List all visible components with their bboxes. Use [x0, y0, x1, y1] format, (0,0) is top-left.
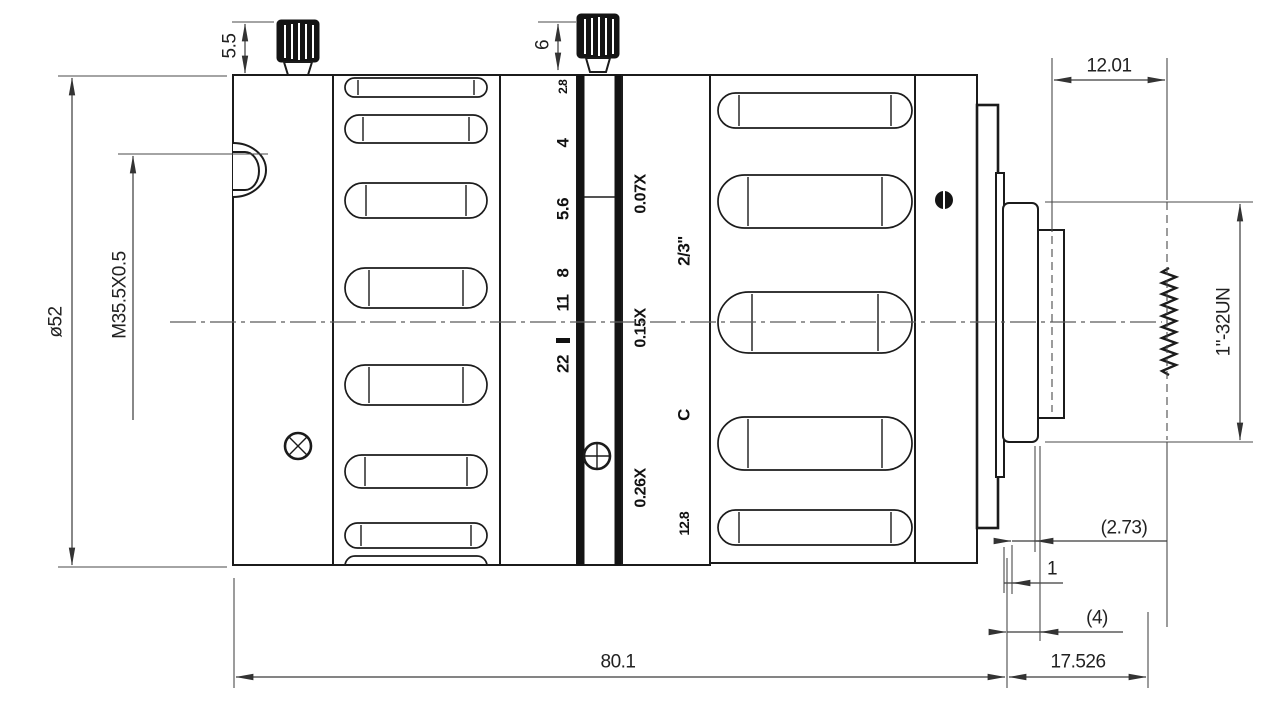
flange-focal-distance-label: 17.526 — [1050, 652, 1105, 673]
lens-drawing: 2.8 4 5.6 8 11 22 0.0 — [0, 0, 1280, 701]
front-knob-height-label: 5.5 — [220, 34, 241, 59]
aperture-value: 5.6 — [554, 198, 573, 220]
index-ring — [577, 75, 622, 565]
mount-section-length-label: 12.01 — [1086, 56, 1131, 77]
dim-tip-ref: (4) — [990, 446, 1123, 641]
dim-front-diameter: ø52 — [46, 76, 228, 567]
aperture-value: 22 — [554, 355, 573, 373]
phillips-screw-icon — [285, 433, 311, 459]
rear-knob-height-label: 6 — [533, 40, 554, 50]
aperture-ring: 2.8 4 5.6 8 11 22 — [500, 75, 577, 565]
lens-drawing-canvas: 2.8 4 5.6 8 11 22 0.0 — [0, 0, 1280, 701]
sensor-format-marking: 2/3" — [675, 236, 694, 266]
focal-length-marking: 12.8 — [676, 511, 692, 535]
magnification-value: 0.07X — [633, 174, 650, 214]
mount-type-marking: C — [675, 409, 694, 421]
tip-ref-label: (4) — [1086, 608, 1108, 629]
filter-thread-label: M35.5X0.5 — [110, 251, 131, 338]
front-diameter-label: ø52 — [46, 306, 67, 337]
flange-offset-label: (2.73) — [1101, 518, 1148, 539]
aperture-value: 8 — [554, 268, 573, 277]
mount-thread-zigzag — [1162, 268, 1176, 375]
focus-grip-ring — [333, 75, 500, 576]
front-cap — [233, 75, 333, 565]
spacer-label: 1 — [1047, 559, 1057, 580]
aperture-value: 11 — [554, 294, 573, 311]
mount-thread-label: 1"-32UN — [1214, 288, 1235, 357]
dim-body-length: 80.1 — [234, 558, 1007, 688]
dim-rear-knob-height: 6 — [533, 22, 577, 70]
body-length-label: 80.1 — [601, 652, 636, 673]
aperture-value: 4 — [554, 137, 573, 147]
aperture-value: 2.8 — [556, 79, 570, 94]
front-thumbscrew — [277, 20, 319, 75]
phillips-screw-icon — [584, 443, 610, 469]
mount-tip — [1038, 230, 1064, 418]
aperture-close-tick — [556, 338, 570, 343]
magnification-value: 0.26X — [633, 468, 650, 508]
dim-flange-focal-distance: 17.526 — [1009, 612, 1148, 688]
dim-flange-offset: (2.73) — [994, 446, 1167, 594]
mount-flange — [977, 105, 1064, 528]
rear-ring — [915, 75, 977, 563]
spec-ring: 0.07X 0.15X 0.26X 2/3" C 12.8 — [622, 75, 710, 565]
magnification-value: 0.15X — [633, 308, 650, 348]
rear-grip-ring — [710, 75, 915, 563]
dim-spacer: 1 — [1004, 547, 1063, 593]
index-thumbscrew — [577, 14, 619, 72]
dim-front-knob-height: 5.5 — [220, 22, 275, 73]
